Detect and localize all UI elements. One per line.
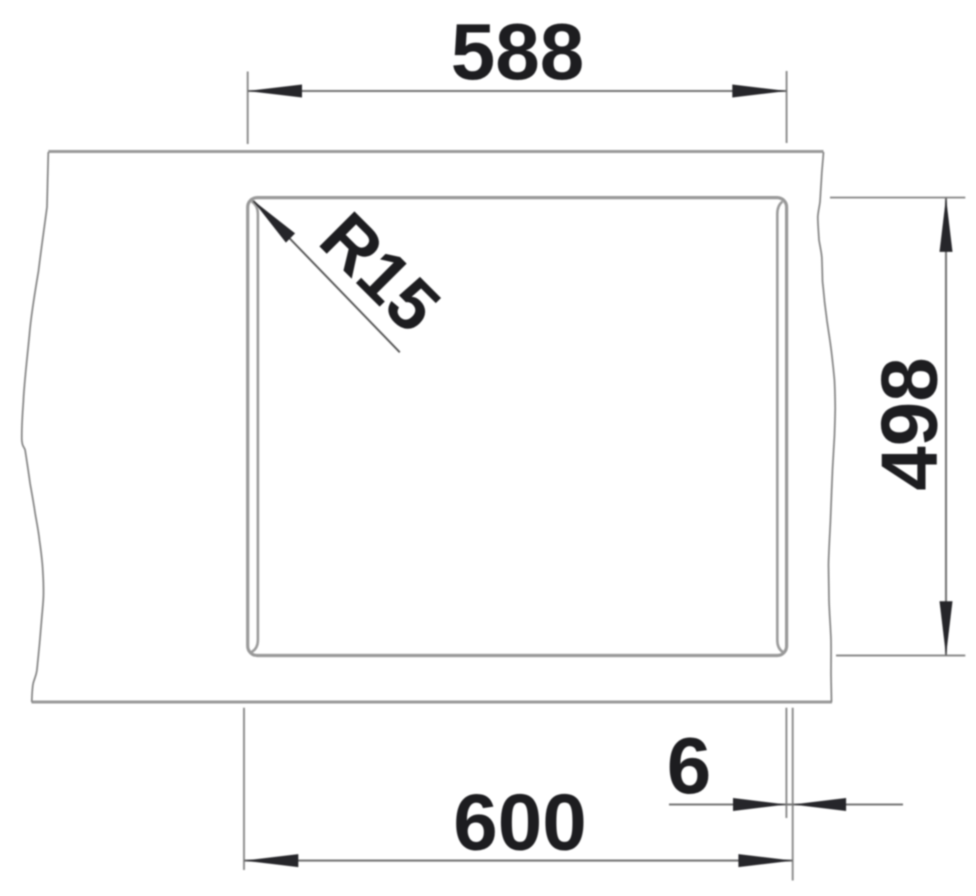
svg-text:R15: R15 bbox=[305, 198, 455, 348]
svg-text:498: 498 bbox=[865, 357, 954, 490]
svg-text:6: 6 bbox=[667, 721, 712, 810]
svg-text:600: 600 bbox=[453, 778, 586, 867]
svg-text:588: 588 bbox=[451, 7, 584, 96]
